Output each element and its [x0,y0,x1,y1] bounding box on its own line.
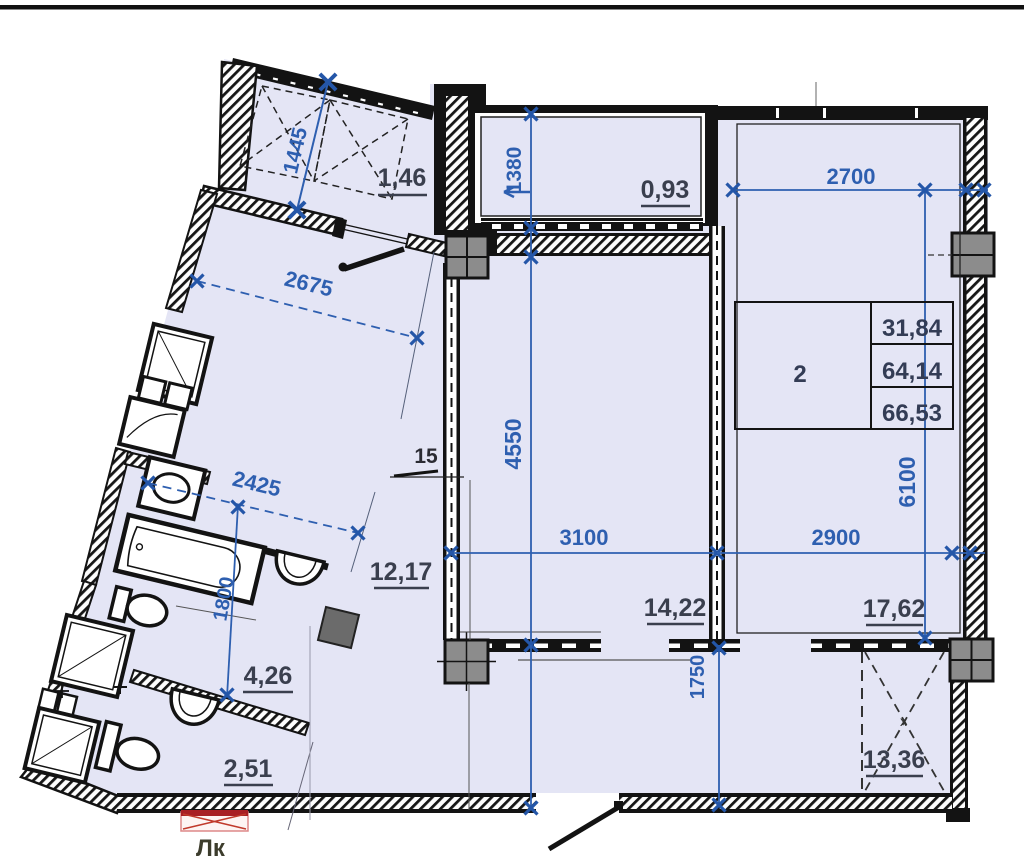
svg-text:17,62: 17,62 [863,595,926,623]
svg-text:1,46: 1,46 [378,164,427,192]
svg-text:1750: 1750 [687,655,709,700]
svg-text:13,36: 13,36 [863,746,926,774]
svg-text:3100: 3100 [560,525,609,550]
svg-text:2: 2 [793,361,806,388]
svg-text:4550: 4550 [500,418,526,469]
svg-text:Лк: Лк [196,835,226,856]
svg-text:1380: 1380 [503,147,526,194]
svg-text:64,14: 64,14 [882,358,943,385]
svg-text:31,84: 31,84 [882,315,943,342]
svg-text:14,22: 14,22 [644,594,707,622]
svg-text:15: 15 [414,445,438,468]
svg-text:2900: 2900 [812,525,861,550]
svg-text:66,53: 66,53 [882,400,942,427]
svg-text:2,51: 2,51 [224,755,273,783]
svg-text:x: x [900,713,907,729]
svg-text:12,17: 12,17 [370,558,433,586]
svg-text:2700: 2700 [827,164,876,189]
svg-text:4,26: 4,26 [244,662,293,690]
svg-text:6100: 6100 [894,456,920,507]
svg-text:0,93: 0,93 [641,176,690,204]
